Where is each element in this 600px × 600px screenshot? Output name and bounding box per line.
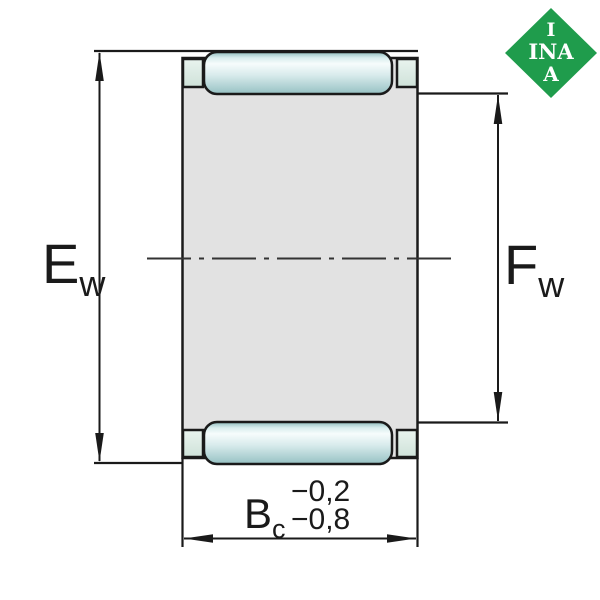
bc-arrow-left-icon [184,534,213,543]
bc-label-base: B [244,490,272,537]
ina-logo-line1: I [547,19,556,41]
ina-logo-line3: A [542,62,559,86]
needle-roller-bottom [204,422,392,464]
bc-arrow-right-icon [387,534,416,543]
fw-label-subscript: w [537,264,565,305]
ew-arrow-up-icon [95,52,104,81]
bc-dimension-label: Bc [244,490,286,544]
bc-label-subscript: c [272,514,286,544]
ew-dimension-label: Ew [42,232,106,304]
cage-lip-top-left [183,59,203,87]
ina-logo: I INA A [505,8,597,98]
cage-lip-bottom-left [183,430,203,457]
ew-label-base: E [42,232,79,295]
bearing-diagram-canvas: Ew Fw Bc −0,2 −0,8 I INA A [0,0,600,600]
cage-lip-bottom-right [397,430,417,457]
ew-arrow-down-icon [95,433,104,462]
fw-arrow-up-icon [494,95,503,124]
fw-dimension-label: Fw [504,233,565,305]
bc-tolerance-lower: −0,8 [291,503,350,536]
fw-arrow-down-icon [494,392,503,421]
needle-roller-top [204,52,392,94]
fw-label-base: F [504,233,538,296]
ew-label-subscript: w [78,263,106,304]
cage-lip-top-right [397,59,417,87]
ina-logo-line2: INA [528,39,574,64]
bearing-drawing: Ew Fw Bc −0,2 −0,8 I INA A [0,0,600,600]
